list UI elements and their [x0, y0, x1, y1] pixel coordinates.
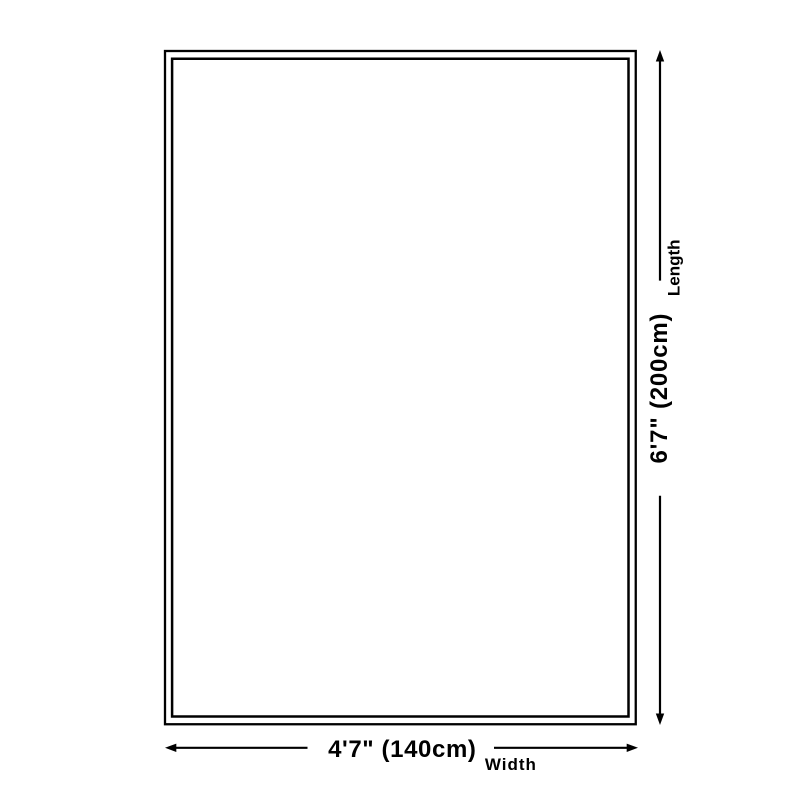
- svg-text:Width: Width: [485, 755, 537, 774]
- svg-text:6'7" (200cm): 6'7" (200cm): [646, 313, 673, 464]
- svg-text:Length: Length: [665, 239, 684, 296]
- svg-text:4'7" (140cm): 4'7" (140cm): [328, 736, 476, 763]
